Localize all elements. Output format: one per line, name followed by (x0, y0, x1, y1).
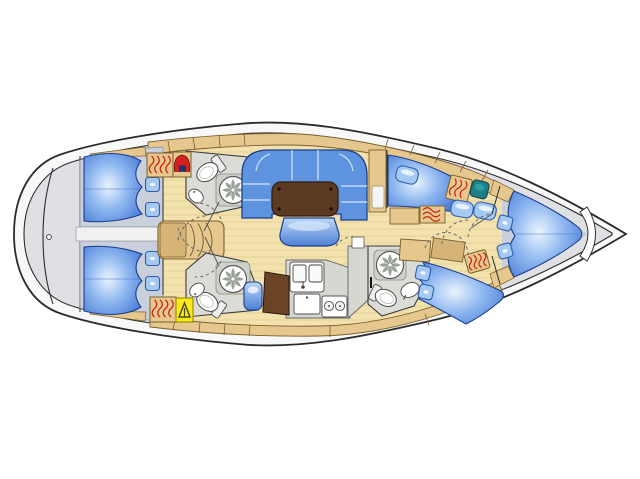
yacht-deck-plan (0, 0, 640, 479)
chart-table (263, 272, 289, 315)
hanging-locker-port-aft (147, 153, 173, 177)
refrigerator-icon (294, 294, 320, 314)
counter-unit (352, 237, 364, 248)
sink-teal-icon (469, 179, 490, 200)
stove-icon (322, 296, 347, 317)
mid-lockers (390, 206, 445, 224)
double-sink-icon (290, 262, 324, 292)
companionway-stairs (158, 221, 224, 259)
navigator-seat (244, 282, 262, 310)
saloon-table (272, 182, 338, 216)
wet-gear-locker-icon (173, 152, 191, 177)
center-walkway (76, 227, 164, 241)
cabinet-door (372, 186, 384, 208)
double-berth (84, 246, 142, 314)
double-berth (84, 154, 142, 222)
hanging-locker-starboard-aft (150, 297, 176, 322)
seat-highlight (288, 221, 330, 231)
gear-locker-icon (176, 298, 193, 322)
swim-ladder-icon (47, 235, 52, 240)
